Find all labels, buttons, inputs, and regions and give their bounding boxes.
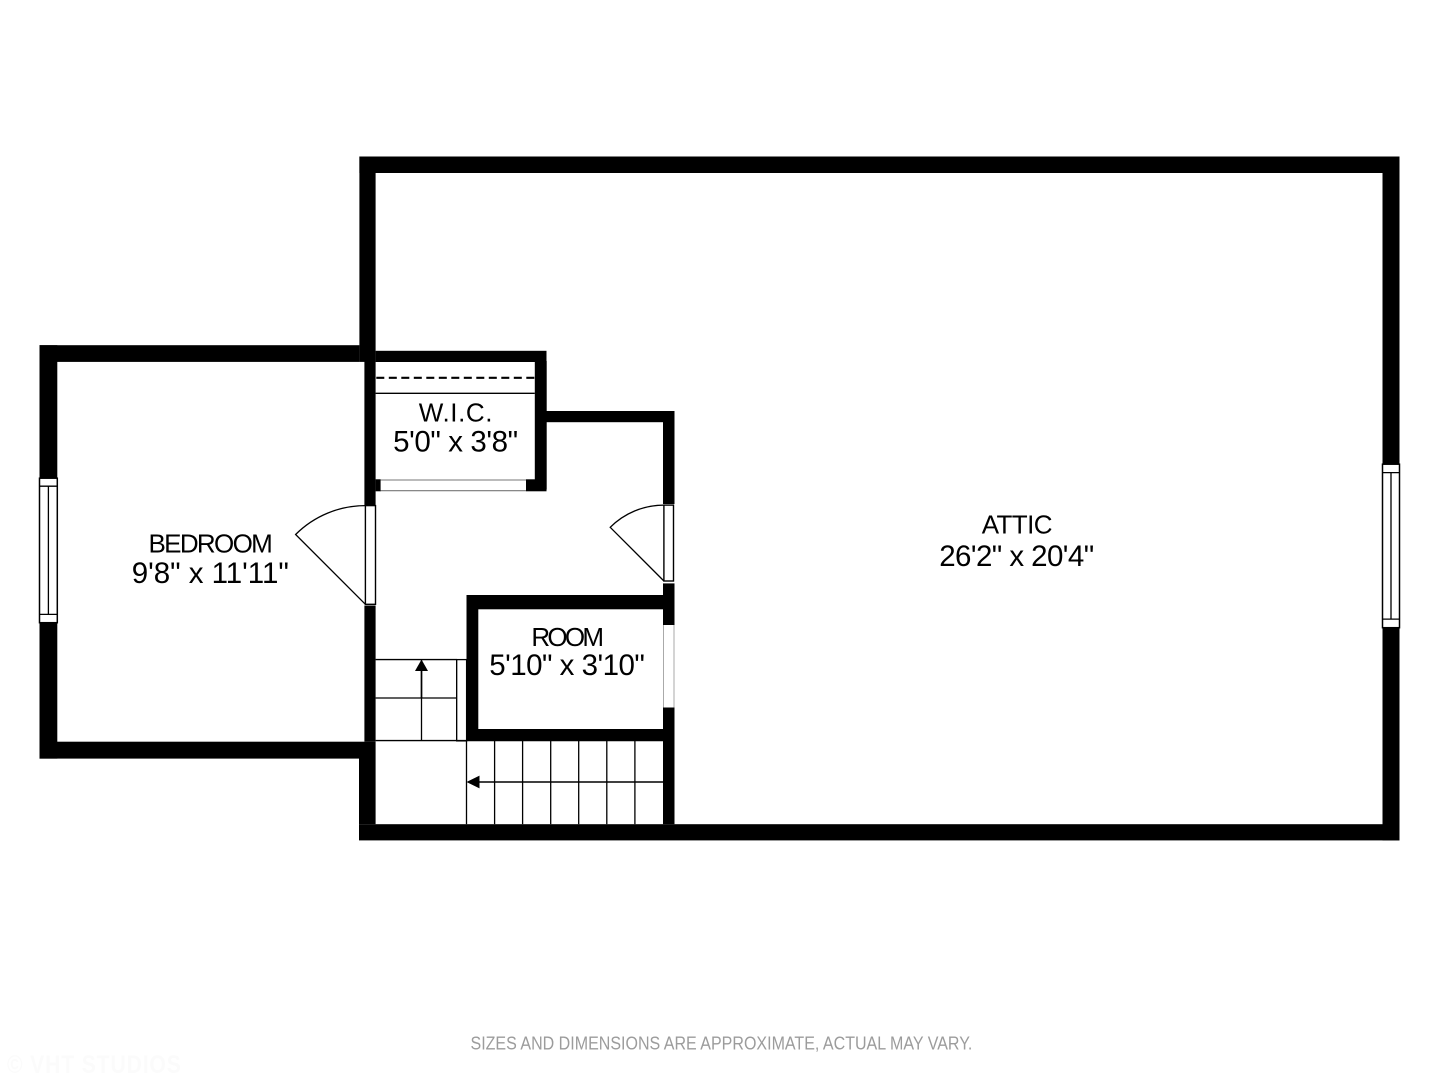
svg-text:5'0" x 3'8": 5'0" x 3'8" <box>393 425 518 458</box>
svg-text:BEDROOM: BEDROOM <box>149 529 273 559</box>
svg-text:ATTIC: ATTIC <box>982 509 1053 539</box>
svg-text:9'8" x 11'11": 9'8" x 11'11" <box>132 557 289 590</box>
svg-text:ROOM: ROOM <box>531 622 604 652</box>
svg-text:W.I.C.: W.I.C. <box>419 397 493 427</box>
svg-text:© VHT STUDIOS: © VHT STUDIOS <box>7 1050 182 1078</box>
svg-text:26'2" x 20'4": 26'2" x 20'4" <box>939 540 1094 573</box>
svg-text:SIZES AND DIMENSIONS ARE APPRO: SIZES AND DIMENSIONS ARE APPROXIMATE, AC… <box>471 1033 973 1054</box>
svg-text:5'10" x 3'10": 5'10" x 3'10" <box>489 649 645 682</box>
